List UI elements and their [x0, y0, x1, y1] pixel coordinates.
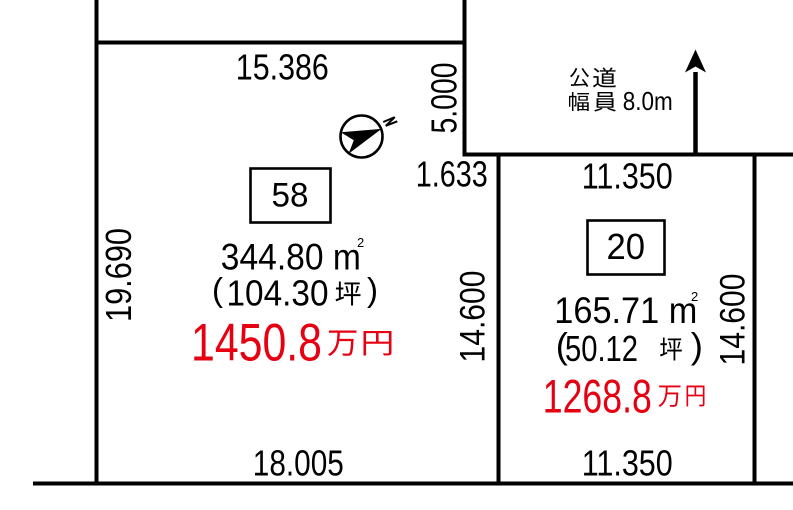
svg-text:): ) — [367, 271, 378, 308]
svg-text:19.690: 19.690 — [98, 228, 139, 322]
svg-text:8.0m: 8.0m — [623, 86, 673, 116]
svg-text:18.005: 18.005 — [253, 443, 344, 484]
svg-text:50.12: 50.12 — [565, 328, 638, 369]
svg-text:14.600: 14.600 — [454, 271, 493, 363]
svg-text:1450.8: 1450.8 — [191, 314, 322, 373]
svg-text:165.71 m: 165.71 m — [554, 289, 697, 331]
svg-text:344.80 m: 344.80 m — [221, 237, 361, 278]
svg-text:5.000: 5.000 — [424, 63, 465, 134]
svg-text:15.386: 15.386 — [236, 47, 329, 88]
svg-text:11.350: 11.350 — [582, 443, 673, 484]
svg-text:): ) — [691, 325, 703, 366]
svg-text:58: 58 — [272, 177, 309, 215]
svg-text:1268.8: 1268.8 — [543, 371, 652, 424]
svg-text:2: 2 — [357, 235, 364, 250]
svg-text:1.633: 1.633 — [416, 154, 488, 195]
svg-text:20: 20 — [607, 226, 646, 267]
svg-text:(: ( — [212, 271, 223, 308]
svg-text:11.350: 11.350 — [582, 156, 673, 197]
svg-text:104.30: 104.30 — [227, 273, 329, 314]
svg-text:2: 2 — [691, 289, 698, 304]
svg-text:14.600: 14.600 — [714, 274, 753, 366]
